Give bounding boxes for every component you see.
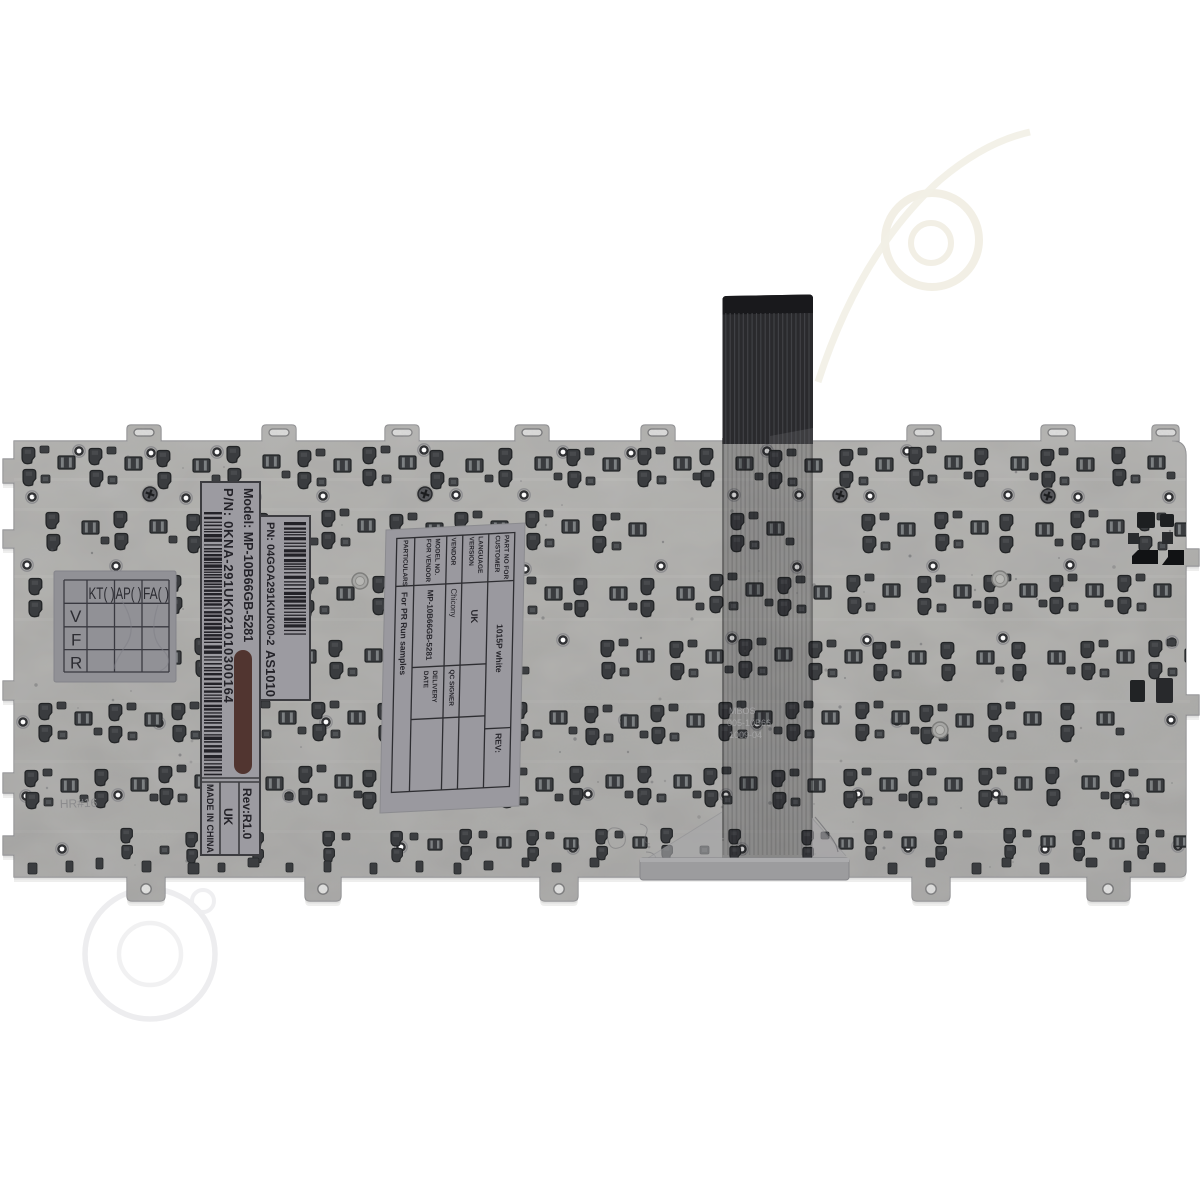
svg-text:PARTICULARS: PARTICULARS	[401, 540, 409, 587]
svg-text:Rev:R1.0: Rev:R1.0	[240, 788, 254, 840]
svg-text:REV:: REV:	[493, 733, 503, 753]
svg-text:005-10B66: 005-10B66	[727, 718, 771, 728]
svg-text:DELIVERY: DELIVERY	[430, 670, 438, 703]
svg-text:MBOS: MBOS	[729, 706, 756, 716]
svg-text:FA( ): FA( )	[143, 584, 169, 603]
svg-text:V: V	[70, 607, 82, 626]
svg-text:MODEL NO.: MODEL NO.	[433, 538, 441, 575]
svg-text:AP( ): AP( )	[116, 584, 142, 603]
svg-text:F: F	[71, 631, 81, 650]
svg-text:UK: UK	[468, 609, 479, 623]
svg-text:1015P white: 1015P white	[494, 624, 505, 673]
svg-text:UK: UK	[221, 808, 235, 826]
svg-text:VENDOR: VENDOR	[449, 537, 457, 565]
svg-text:HR#16: HR#16	[60, 796, 98, 811]
svg-text:R: R	[70, 654, 82, 673]
svg-text:VERSION: VERSION	[467, 537, 475, 567]
svg-text:CUSTOMER: CUSTOMER	[493, 535, 501, 573]
svg-text:PART NO FOR: PART NO FOR	[502, 535, 510, 580]
svg-text:KT( ): KT( )	[89, 584, 115, 603]
svg-text:LANGUAGE: LANGUAGE	[476, 536, 484, 574]
svg-text:DATE: DATE	[422, 671, 429, 689]
svg-text:P/N: 0KNA-291UK021010300164: P/N: 0KNA-291UK021010300164	[221, 488, 236, 704]
svg-text:PN: 04GOA291KUK00-2: PN: 04GOA291KUK00-2	[264, 522, 276, 646]
svg-text:QC SIGNER: QC SIGNER	[447, 669, 455, 706]
svg-text:For PR Run samples: For PR Run samples	[398, 592, 410, 676]
svg-text:MP-10B66GB-5281: MP-10B66GB-5281	[424, 589, 435, 661]
svg-text:AS1010: AS1010	[263, 650, 278, 697]
svg-text:Chicony: Chicony	[449, 588, 459, 617]
svg-text:1009-04: 1009-04	[729, 730, 762, 740]
svg-text:MADE IN CHINA: MADE IN CHINA	[205, 784, 215, 853]
svg-text:Model: MP-10B66GB-5281: Model: MP-10B66GB-5281	[241, 488, 255, 642]
svg-text:FOR VENDOR: FOR VENDOR	[424, 539, 432, 583]
